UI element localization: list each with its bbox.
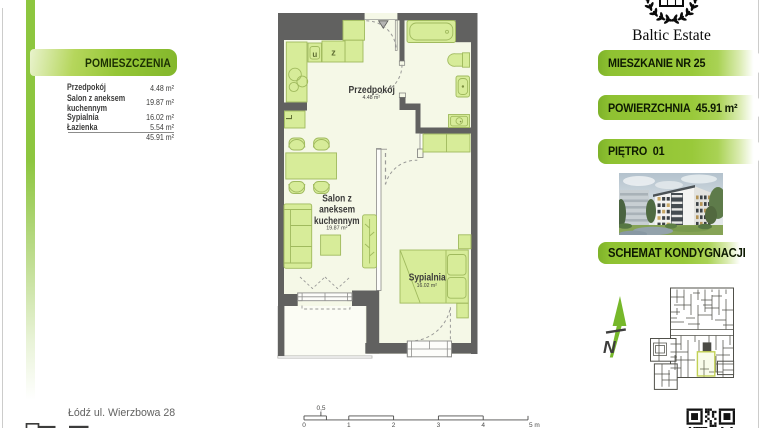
svg-text:2: 2 [392,422,396,428]
svg-text:16.02 m²: 16.02 m² [417,283,437,289]
svg-text:z: z [331,48,336,58]
svg-text:Salon z: Salon z [322,194,352,205]
svg-text:u: u [312,50,317,59]
svg-text:3: 3 [437,422,441,428]
svg-text:aneksem: aneksem [319,205,355,216]
svg-text:5 m: 5 m [529,422,540,428]
svg-text:4: 4 [481,422,485,428]
svg-text:Baltic Estate: Baltic Estate [632,27,711,44]
svg-text:0,5: 0,5 [316,405,325,412]
svg-text:L: L [285,115,294,120]
svg-text:0: 0 [302,422,306,428]
svg-text:Sypialnia: Sypialnia [409,273,446,284]
svg-text:1: 1 [347,422,351,428]
svg-text:N: N [603,337,616,357]
svg-text:19.87 m²: 19.87 m² [326,226,347,232]
svg-text:4.48 m²: 4.48 m² [363,95,381,101]
